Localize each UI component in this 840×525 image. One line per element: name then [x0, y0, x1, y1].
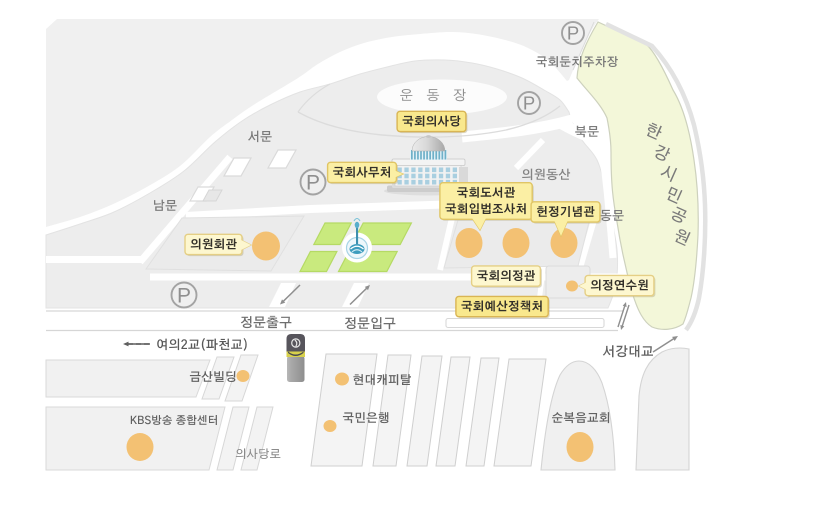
svg-text:P: P	[567, 23, 579, 44]
svg-text:P: P	[177, 285, 191, 308]
svg-text:P: P	[306, 172, 320, 195]
svg-text:P: P	[523, 93, 535, 114]
